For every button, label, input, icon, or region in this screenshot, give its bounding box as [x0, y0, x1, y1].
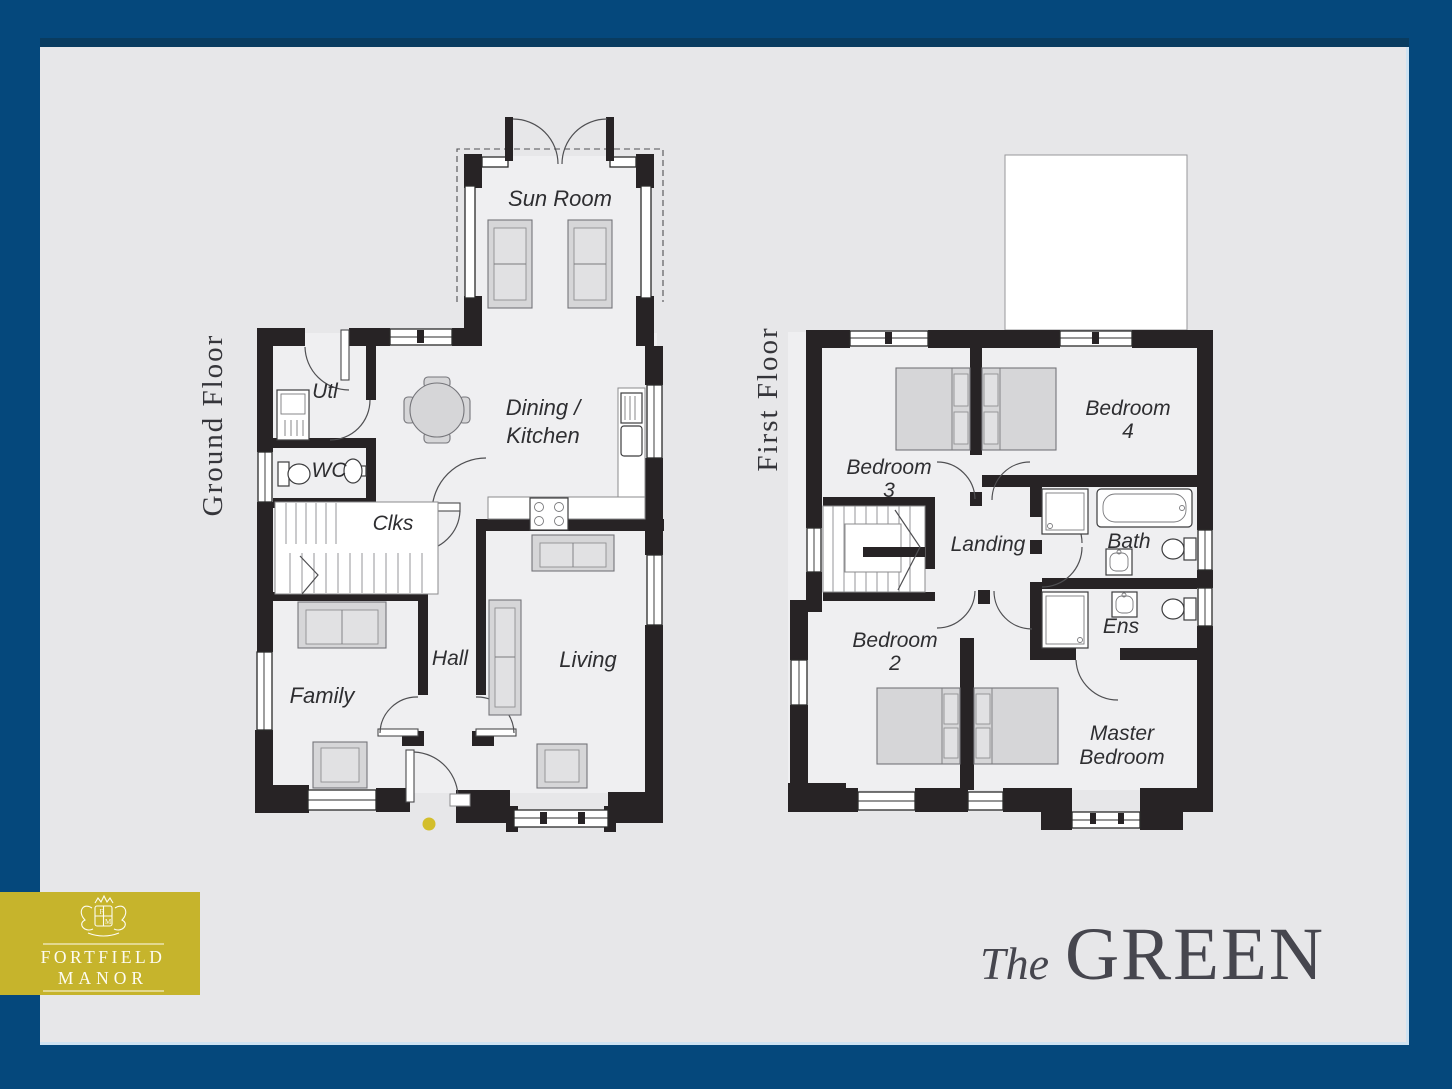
plot-title: The GREEN: [980, 912, 1325, 998]
living-door-leaf: [476, 729, 516, 736]
room-label-bedroom2-line2: 2: [888, 652, 901, 675]
first-staircase: [823, 506, 925, 592]
family-sofa-icon: [298, 602, 386, 648]
ensuite-basin-icon: [1112, 592, 1137, 617]
room-label-cloaks: Clks: [373, 512, 414, 535]
utility-fixtures: [277, 390, 309, 440]
brand-logo: F M FORTFIELD MANOR: [0, 892, 200, 995]
room-label-ensuite: Ens: [1103, 615, 1140, 638]
room-label-family: Family: [290, 683, 357, 708]
room-label-living: Living: [559, 647, 617, 672]
staircase: [275, 502, 438, 594]
roof-blank-area: [1005, 155, 1187, 330]
room-label-bath: Bath: [1107, 530, 1150, 553]
room-label-utility: Utl: [312, 380, 339, 403]
plot-title-prefix: The: [980, 937, 1049, 990]
first-floor-plan: First Floor: [750, 140, 1225, 840]
room-label-wc: WC: [312, 459, 348, 482]
ground-floor-plan: Ground Floor Sun Room: [195, 100, 670, 845]
room-label-hall: Hall: [432, 647, 470, 670]
ground-floor-title: Ground Floor: [197, 334, 229, 517]
brand-name-line2: MANOR: [58, 968, 148, 988]
room-label-dining-line1: Dining /: [506, 395, 582, 420]
ensuite-toilet-icon: [1162, 598, 1196, 620]
plot-marker-dot: [423, 818, 436, 831]
first-floor-title: First Floor: [752, 326, 784, 471]
toilet-icon: [278, 462, 310, 486]
family-door-leaf: [378, 729, 418, 736]
crest-letter-f: F: [100, 908, 104, 916]
family-armchair-icon: [313, 742, 367, 788]
brand-logo-box: F M FORTFIELD MANOR: [0, 892, 200, 995]
shower-icon: [1042, 489, 1088, 534]
room-label-bedroom3-line2: 3: [883, 479, 895, 502]
master-bed-icon: [974, 688, 1058, 764]
crest-letter-m: M: [105, 918, 112, 926]
room-label-bedroom3-line1: Bedroom: [846, 456, 931, 479]
room-label-bedroom4-line1: Bedroom: [1085, 397, 1170, 420]
hob-icon: [530, 498, 568, 530]
ensuite-shower-icon: [1042, 592, 1088, 648]
bedroom2-bed-icon: [877, 688, 960, 764]
room-label-bedroom2-line1: Bedroom: [852, 629, 937, 652]
back-door-leaf: [341, 330, 349, 380]
front-door-leaf: [406, 750, 414, 802]
living-sofa2-icon: [489, 600, 521, 715]
living-sofa-icon: [532, 535, 614, 571]
bath-toilet-icon: [1162, 538, 1196, 560]
plot-title-name: GREEN: [1065, 912, 1325, 998]
room-label-dining-line2: Kitchen: [506, 423, 579, 448]
brand-name-line1: FORTFIELD: [41, 947, 166, 967]
brand-crest-icon: [81, 896, 125, 936]
room-label-master-line2: Bedroom: [1079, 746, 1164, 769]
room-label-master-line1: Master: [1090, 722, 1155, 745]
living-armchair-icon: [537, 744, 587, 788]
room-label-landing: Landing: [951, 533, 1026, 556]
bathtub-icon: [1097, 489, 1192, 527]
front-door-sill: [450, 794, 470, 806]
room-label-bedroom4-line2: 4: [1122, 420, 1134, 443]
room-label-sun-room: Sun Room: [508, 186, 612, 211]
bedroom4-bed-icon: [982, 368, 1056, 450]
bedroom3-bed-icon: [896, 368, 970, 450]
